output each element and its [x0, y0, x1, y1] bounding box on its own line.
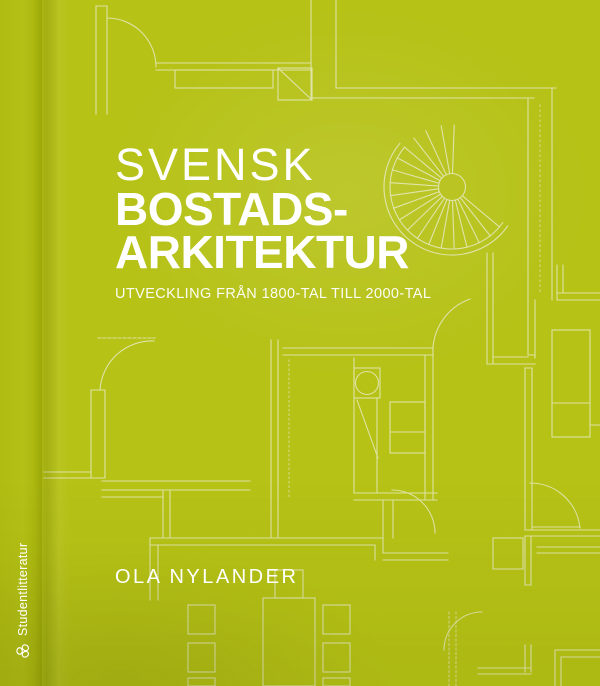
- cover-vignette: [0, 0, 600, 686]
- book-cover: SVENSK BOSTADS- ARKITEKTUR UTVECKLING FR…: [0, 0, 600, 686]
- title-line-1: SVENSK: [115, 142, 409, 186]
- title-block: SVENSK BOSTADS- ARKITEKTUR: [115, 142, 409, 272]
- floor-plan-drawing: [0, 0, 600, 686]
- publisher-logo-icon: [14, 642, 32, 660]
- title-line-3: ARKITEKTUR: [115, 229, 409, 272]
- publisher-name: Studentlitteratur: [16, 543, 30, 636]
- title-line-2: BOSTADS-: [115, 186, 409, 229]
- subtitle: UTVECKLING FRÅN 1800-TAL TILL 2000-TAL: [115, 286, 431, 302]
- author-name: OLA NYLANDER: [115, 566, 298, 589]
- spine-publisher: Studentlitteratur: [14, 543, 32, 660]
